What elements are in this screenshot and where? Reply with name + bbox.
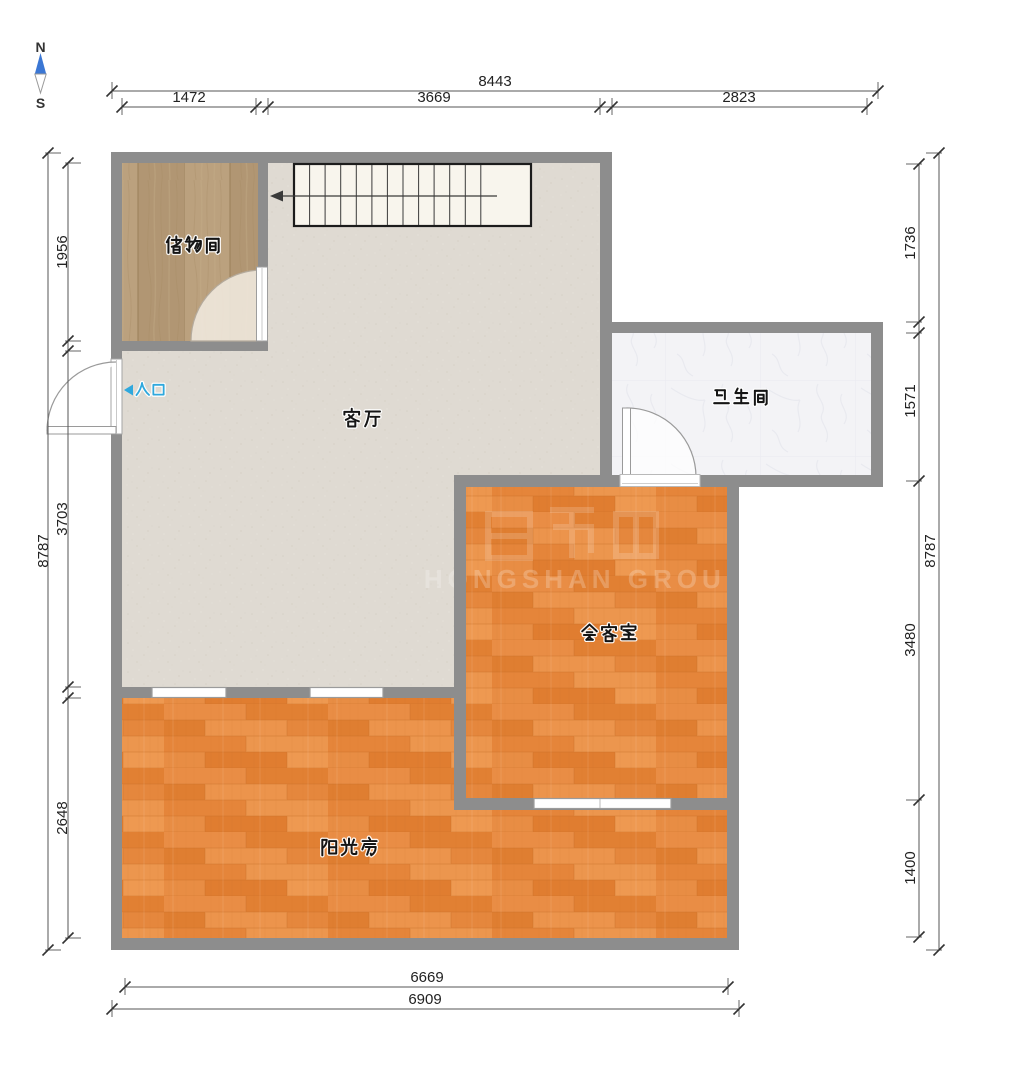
svg-text:HONGSHAN GROUP: HONGSHAN GROUP [424, 564, 748, 594]
svg-text:3703: 3703 [54, 502, 71, 535]
svg-text:6669: 6669 [410, 969, 443, 986]
svg-text:1472: 1472 [172, 89, 205, 106]
svg-text:2648: 2648 [54, 801, 71, 834]
svg-text:1400: 1400 [902, 851, 919, 884]
svg-text:S: S [36, 95, 45, 111]
svg-text:6909: 6909 [408, 991, 441, 1008]
svg-text:8787: 8787 [922, 534, 939, 567]
svg-text:8787: 8787 [35, 534, 52, 567]
svg-text:3480: 3480 [902, 623, 919, 656]
svg-text:1736: 1736 [902, 226, 919, 259]
svg-text:1571: 1571 [902, 384, 919, 417]
svg-text:8443: 8443 [478, 73, 511, 90]
svg-text:N: N [35, 39, 45, 55]
svg-text:1956: 1956 [54, 235, 71, 268]
svg-text:2823: 2823 [722, 89, 755, 106]
svg-text:3669: 3669 [417, 89, 450, 106]
